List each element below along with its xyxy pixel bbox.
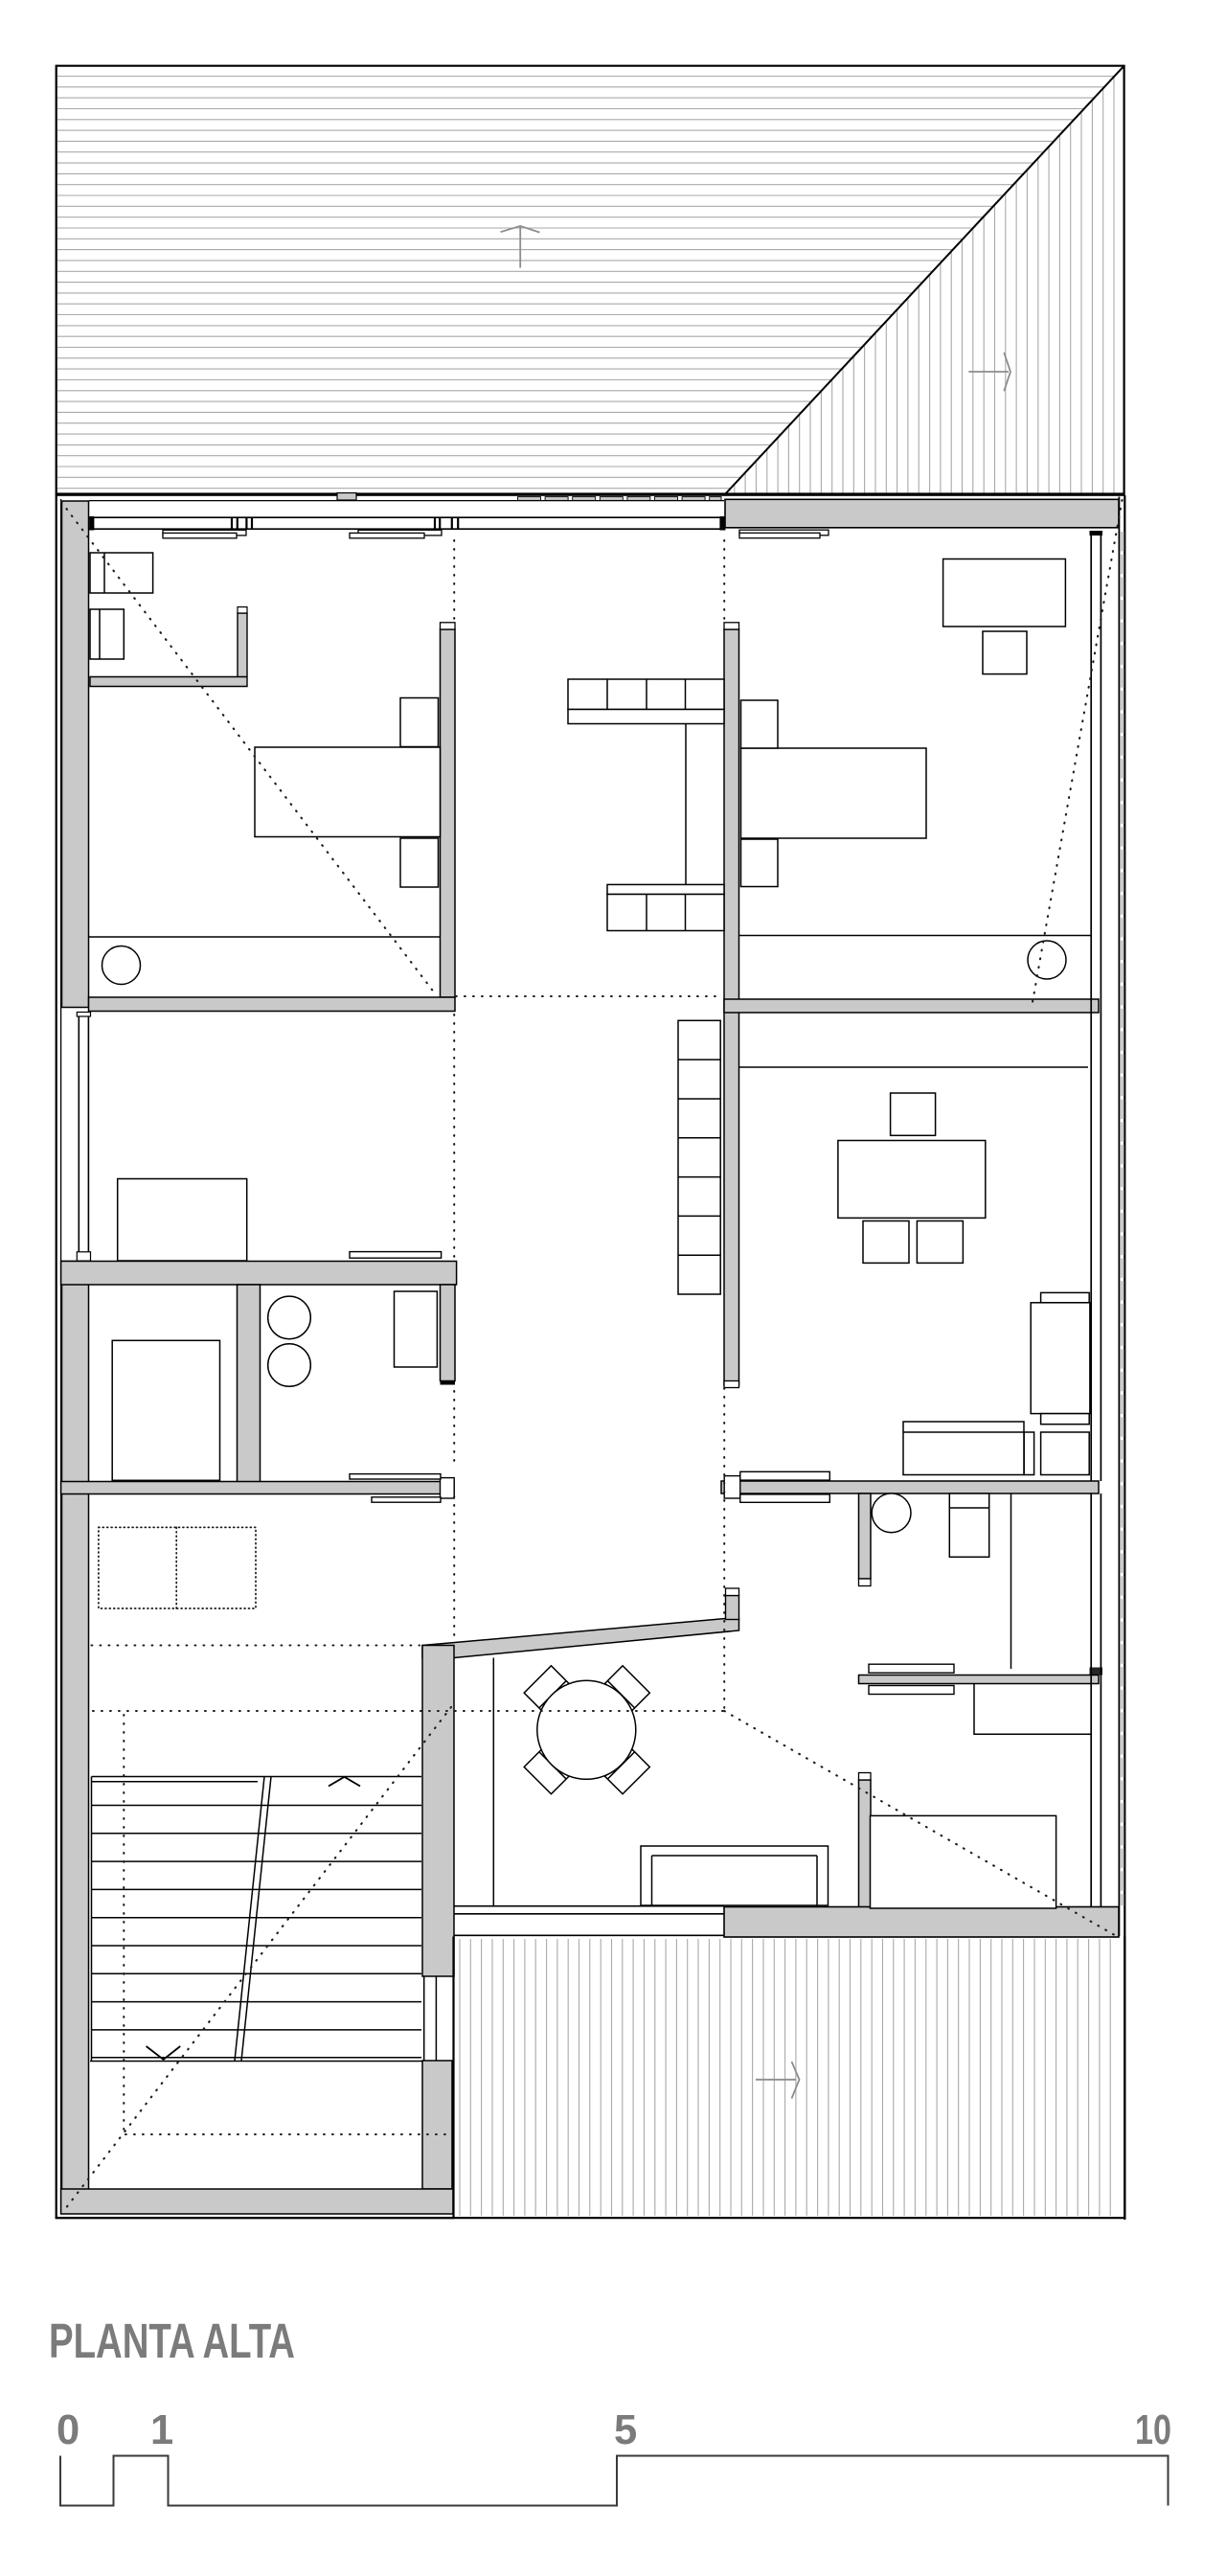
svg-text:1: 1: [150, 2407, 173, 2453]
svg-text:0: 0: [57, 2407, 79, 2453]
svg-text:PLANTA ALTA: PLANTA ALTA: [49, 2314, 295, 2368]
svg-text:10: 10: [1135, 2407, 1171, 2453]
svg-text:5: 5: [614, 2407, 637, 2453]
